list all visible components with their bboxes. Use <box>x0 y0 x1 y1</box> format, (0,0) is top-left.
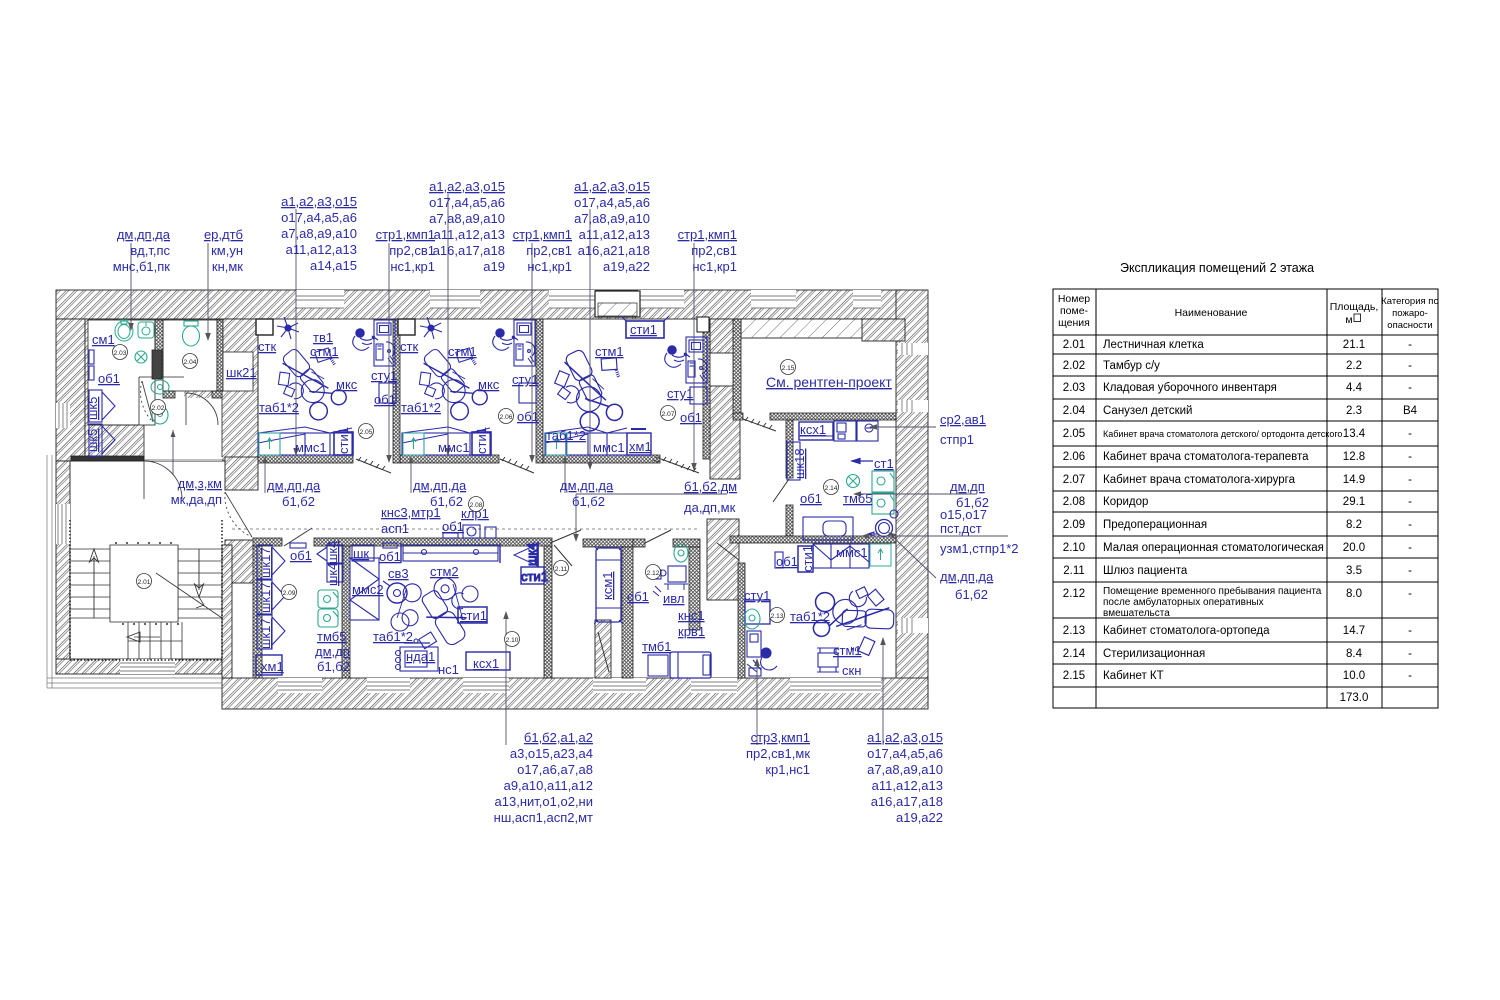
svg-text:б1,б2,а1,а2: б1,б2,а1,а2 <box>524 730 593 745</box>
svg-text:а1,а2,а3,о15: а1,а2,а3,о15 <box>281 194 357 209</box>
svg-text:а11,а12,а13: а11,а12,а13 <box>286 242 357 257</box>
svg-text:тмб5: тмб5 <box>317 629 346 644</box>
svg-text:пр2,св1: пр2,св1 <box>389 243 435 258</box>
svg-text:8.0: 8.0 <box>1346 588 1362 600</box>
svg-text:св3: св3 <box>388 566 409 581</box>
svg-text:2.08: 2.08 <box>1063 496 1085 508</box>
svg-text:стр1,кмп1: стр1,кмп1 <box>678 227 737 242</box>
svg-text:ст1: ст1 <box>874 456 894 471</box>
svg-text:ивл: ивл <box>663 591 684 606</box>
svg-text:после амбулаторных оперативных: после амбулаторных оперативных <box>1103 596 1264 608</box>
svg-text:29.1: 29.1 <box>1343 496 1365 508</box>
svg-text:шк4: шк4 <box>325 563 340 586</box>
svg-text:2.14: 2.14 <box>1063 648 1086 660</box>
svg-text:8.2: 8.2 <box>1346 519 1362 531</box>
svg-text:Номер: Номер <box>1058 293 1090 305</box>
svg-text:Предоперационная: Предоперационная <box>1103 519 1207 531</box>
svg-text:нс1,кр1: нс1,кр1 <box>692 259 737 274</box>
svg-text:а19: а19 <box>483 259 505 274</box>
svg-text:кр1,нс1: кр1,нс1 <box>765 762 810 777</box>
svg-text:об1: об1 <box>379 549 401 564</box>
svg-text:2.12: 2.12 <box>647 570 660 577</box>
svg-text:2.13: 2.13 <box>1063 625 1085 637</box>
svg-text:ммс1: ммс1 <box>438 440 470 455</box>
svg-text:б1,б2: б1,б2 <box>430 494 463 509</box>
svg-text:стм1: стм1 <box>310 344 339 359</box>
svg-text:дм,дп,да: дм,дп,да <box>413 478 467 493</box>
svg-text:-: - <box>1408 625 1412 637</box>
svg-text:нс1,кр1: нс1,кр1 <box>390 259 435 274</box>
svg-text:дм,дп: дм,дп <box>315 644 350 659</box>
svg-text:да,дп,мк: да,дп,мк <box>684 500 736 515</box>
svg-text:а11,а12,а13: а11,а12,а13 <box>579 227 650 242</box>
svg-text:см1: см1 <box>92 332 115 347</box>
svg-text:2.09: 2.09 <box>283 590 296 597</box>
svg-text:стк: стк <box>400 339 418 354</box>
svg-text:а11,а12,а13: а11,а12,а13 <box>434 227 505 242</box>
svg-text:сти1: сти1 <box>521 569 548 584</box>
svg-text:б1,б2,дм: б1,б2,дм <box>684 479 737 494</box>
svg-text:стм1: стм1 <box>595 344 624 359</box>
svg-text:о17,а4,а5,а6: о17,а4,а5,а6 <box>867 746 943 761</box>
svg-text:стр1,кмп1: стр1,кмп1 <box>513 227 572 242</box>
svg-text:14.7: 14.7 <box>1343 625 1365 637</box>
svg-text:ммс2: ммс2 <box>352 582 384 597</box>
svg-text:мкс: мкс <box>336 377 358 392</box>
svg-text:2.04: 2.04 <box>1063 405 1086 417</box>
svg-text:Кабинет стоматолога-ортопеда: Кабинет стоматолога-ортопеда <box>1103 625 1270 637</box>
svg-text:хм1: хм1 <box>629 439 652 454</box>
svg-text:-: - <box>1408 474 1412 486</box>
svg-text:2.12: 2.12 <box>1063 588 1085 600</box>
svg-text:стр1,кмп1: стр1,кмп1 <box>376 227 435 242</box>
svg-text:стр3,кмп1: стр3,кмп1 <box>751 730 810 745</box>
svg-text:2.04: 2.04 <box>184 359 197 366</box>
svg-text:сту1: сту1 <box>512 372 538 387</box>
svg-text:2.06: 2.06 <box>500 414 513 421</box>
svg-text:10.0: 10.0 <box>1343 670 1365 682</box>
svg-text:б1,б2: б1,б2 <box>317 659 350 674</box>
svg-text:-: - <box>1408 451 1412 463</box>
svg-text:2.15: 2.15 <box>1063 670 1085 682</box>
svg-text:Малая операционная стоматологи: Малая операционная стоматологическая <box>1103 542 1324 554</box>
svg-text:См. рентген-проект: См. рентген-проект <box>766 374 892 390</box>
svg-text:о15,о17: о15,о17 <box>940 507 987 522</box>
svg-text:а1,а2,а3,о15: а1,а2,а3,о15 <box>867 730 943 745</box>
svg-text:б1,б2: б1,б2 <box>955 587 988 602</box>
svg-text:-: - <box>1408 360 1412 372</box>
svg-text:-: - <box>1408 542 1412 554</box>
svg-text:ксх1: ксх1 <box>800 422 826 437</box>
svg-text:2.2: 2.2 <box>1346 360 1362 372</box>
svg-text:кн,мк: кн,мк <box>212 259 243 274</box>
svg-text:сти1: сти1 <box>474 427 489 454</box>
svg-text:тмб5: тмб5 <box>843 491 872 506</box>
svg-text:пожаро-: пожаро- <box>1392 308 1428 319</box>
svg-text:2.03: 2.03 <box>1063 382 1085 394</box>
svg-text:дм,з,км: дм,з,км <box>178 476 222 491</box>
svg-text:пр2,св1,мк: пр2,св1,мк <box>746 746 810 761</box>
svg-text:а19,а22: а19,а22 <box>603 259 650 274</box>
svg-text:4.4: 4.4 <box>1346 382 1363 394</box>
svg-text:2.06: 2.06 <box>1063 451 1085 463</box>
svg-text:2.10: 2.10 <box>506 637 519 644</box>
svg-text:2.13: 2.13 <box>771 613 784 620</box>
svg-text:скн: скн <box>842 663 861 678</box>
svg-text:Стерилизационная: Стерилизационная <box>1103 648 1205 660</box>
svg-text:Шлюз пациента: Шлюз пациента <box>1103 565 1188 577</box>
svg-text:3.5: 3.5 <box>1346 565 1362 577</box>
svg-text:мк,да,дп: мк,да,дп <box>171 492 222 507</box>
svg-text:2.11: 2.11 <box>1063 565 1085 577</box>
svg-text:Кладовая уборочного инвентаря: Кладовая уборочного инвентаря <box>1103 382 1277 394</box>
svg-text:вмешательста: вмешательста <box>1103 608 1170 619</box>
svg-text:пст,дст: пст,дст <box>940 521 982 536</box>
svg-text:20.0: 20.0 <box>1343 542 1365 554</box>
svg-text:стм1: стм1 <box>833 643 862 658</box>
svg-text:дм,дп,да: дм,дп,да <box>560 478 614 493</box>
svg-text:стк: стк <box>258 339 276 354</box>
svg-text:таб1*2: таб1*2 <box>259 400 299 415</box>
svg-text:крв1: крв1 <box>678 624 705 639</box>
svg-text:2.14: 2.14 <box>825 485 838 492</box>
svg-text:Санузел детский: Санузел детский <box>1103 405 1192 417</box>
svg-text:шк4: шк4 <box>524 543 539 566</box>
svg-text:нс1: нс1 <box>438 662 459 677</box>
svg-text:2.05: 2.05 <box>360 429 373 436</box>
svg-text:щения: щения <box>1058 317 1090 329</box>
svg-text:мнс,б1,пк: мнс,б1,пк <box>113 259 171 274</box>
svg-text:об1: об1 <box>800 491 822 506</box>
svg-text:-: - <box>1408 519 1412 531</box>
svg-text:а1,а2,а3,о15: а1,а2,а3,о15 <box>574 179 650 194</box>
svg-text:-: - <box>1408 382 1412 394</box>
svg-text:о17,а6,а7,а8: о17,а6,а7,а8 <box>517 762 593 777</box>
svg-text:13.4: 13.4 <box>1343 428 1366 440</box>
svg-text:поме-: поме- <box>1060 305 1089 317</box>
svg-text:а7,а8,а9,а10: а7,а8,а9,а10 <box>281 226 357 241</box>
svg-text:2.07: 2.07 <box>662 411 675 418</box>
svg-text:Тамбур с/у: Тамбур с/у <box>1103 360 1160 372</box>
svg-text:тмб1: тмб1 <box>642 639 671 654</box>
svg-text:шк4: шк4 <box>325 541 340 564</box>
svg-text:м: м <box>1345 314 1352 326</box>
svg-text:шк17: шк17 <box>258 582 273 613</box>
svg-text:шк5: шк5 <box>85 397 100 420</box>
svg-text:кнс1: кнс1 <box>678 608 705 623</box>
svg-text:-: - <box>1408 428 1412 440</box>
svg-text:б1,б2: б1,б2 <box>572 494 605 509</box>
svg-text:а7,а8,а9,а10: а7,а8,а9,а10 <box>429 211 505 226</box>
svg-text:стм1: стм1 <box>448 344 477 359</box>
svg-text:дм,дп,да: дм,дп,да <box>267 478 321 493</box>
svg-text:сти1: сти1 <box>336 427 351 454</box>
svg-text:таб1*2: таб1*2 <box>373 629 413 644</box>
svg-text:а3,о15,а23,а4: а3,о15,а23,а4 <box>510 746 593 761</box>
svg-text:-: - <box>1408 496 1412 508</box>
svg-text:8.4: 8.4 <box>1346 648 1363 660</box>
svg-text:ммс1: ммс1 <box>295 440 327 455</box>
svg-text:Кабинет врача стоматолога-хиру: Кабинет врача стоматолога-хирурга <box>1103 474 1296 486</box>
svg-text:пр2,св1: пр2,св1 <box>691 243 737 258</box>
svg-text:ксм1: ксм1 <box>600 571 615 600</box>
svg-text:2.07: 2.07 <box>1063 474 1085 486</box>
svg-text:Наименование: Наименование <box>1175 307 1248 319</box>
svg-text:а7,а8,а9,а10: а7,а8,а9,а10 <box>574 211 650 226</box>
svg-text:Экспликация помещений 2 этажа: Экспликация помещений 2 этажа <box>1120 261 1314 275</box>
svg-text:2.15: 2.15 <box>782 365 795 372</box>
svg-text:шк17: шк17 <box>258 547 273 578</box>
svg-text:шк17: шк17 <box>258 618 273 649</box>
svg-text:сту1: сту1 <box>371 368 397 383</box>
svg-text:Коридор: Коридор <box>1103 496 1148 508</box>
svg-text:сти1: сти1 <box>460 608 487 623</box>
svg-text:нш,асп1,асп2,мт: нш,асп1,асп2,мт <box>494 810 593 825</box>
svg-text:км,ун: км,ун <box>211 243 243 258</box>
svg-text:об1: об1 <box>374 392 396 407</box>
svg-text:ксх1: ксх1 <box>473 656 499 671</box>
svg-text:таб1*2: таб1*2 <box>546 428 586 443</box>
svg-text:нс1,кр1: нс1,кр1 <box>527 259 572 274</box>
svg-text:-: - <box>1408 588 1412 600</box>
svg-text:об1: об1 <box>680 410 702 425</box>
svg-text:о17,а4,а5,а6: о17,а4,а5,а6 <box>281 210 357 225</box>
svg-text:об1: об1 <box>290 548 312 563</box>
svg-text:12.8: 12.8 <box>1343 451 1365 463</box>
svg-text:2.11: 2.11 <box>555 566 568 573</box>
svg-text:опасности: опасности <box>1387 320 1432 331</box>
svg-text:таб1*2: таб1*2 <box>790 609 830 624</box>
svg-text:ммс1: ммс1 <box>593 440 625 455</box>
svg-text:-: - <box>1408 339 1412 351</box>
svg-text:а1,а2,а3,о15: а1,а2,а3,о15 <box>429 179 505 194</box>
svg-text:ммс1: ммс1 <box>836 545 868 560</box>
svg-text:о17,а4,а5,а6: о17,а4,а5,а6 <box>574 195 650 210</box>
svg-text:а16,а21,а18: а16,а21,а18 <box>578 243 650 258</box>
svg-text:а11,а12,а13: а11,а12,а13 <box>872 778 943 793</box>
svg-text:нда1: нда1 <box>406 649 435 664</box>
svg-text:2.01: 2.01 <box>138 579 151 586</box>
svg-text:об1: об1 <box>776 554 798 569</box>
svg-text:2.09: 2.09 <box>1063 519 1085 531</box>
svg-text:Кабинет врача стоматолога детс: Кабинет врача стоматолога детского/ орто… <box>1103 429 1342 439</box>
svg-text:Кабинет врача стоматолога-тера: Кабинет врача стоматолога-терапевта <box>1103 451 1309 463</box>
svg-text:14.9: 14.9 <box>1343 474 1365 486</box>
svg-text:2.05: 2.05 <box>1063 428 1085 440</box>
svg-text:2.02: 2.02 <box>1063 360 1085 372</box>
svg-text:а13,нит,о1,о2,ни: а13,нит,о1,о2,ни <box>495 794 593 809</box>
svg-text:мкс: мкс <box>478 377 500 392</box>
svg-text:сту1: сту1 <box>667 386 693 401</box>
svg-text:а14,а15: а14,а15 <box>310 258 357 273</box>
svg-text:сту1: сту1 <box>744 588 770 603</box>
svg-text:2.3: 2.3 <box>1346 405 1362 417</box>
svg-text:сти1: сти1 <box>630 322 657 337</box>
svg-text:2.02: 2.02 <box>152 405 165 412</box>
svg-text:хм1: хм1 <box>261 659 284 674</box>
svg-text:сти1: сти1 <box>800 545 815 572</box>
svg-text:дм,дп,да: дм,дп,да <box>940 569 994 584</box>
svg-text:об1: об1 <box>98 371 120 386</box>
svg-text:шк: шк <box>353 546 369 561</box>
svg-text:вд,т,пс: вд,т,пс <box>130 243 170 258</box>
svg-text:б1,б2: б1,б2 <box>282 494 315 509</box>
svg-text:2.08: 2.08 <box>470 502 483 509</box>
svg-text:об1: об1 <box>627 589 649 604</box>
svg-text:-: - <box>1408 648 1412 660</box>
svg-text:-: - <box>1408 565 1412 577</box>
svg-text:стпр1: стпр1 <box>940 432 974 447</box>
svg-text:асп1: асп1 <box>381 521 409 536</box>
svg-text:стм2: стм2 <box>430 564 459 579</box>
svg-text:173.0: 173.0 <box>1340 692 1369 704</box>
svg-text:Кабинет КТ: Кабинет КТ <box>1103 670 1164 682</box>
svg-text:шк21: шк21 <box>226 365 257 380</box>
svg-text:Лестничная клетка: Лестничная клетка <box>1103 339 1204 351</box>
svg-text:В4: В4 <box>1403 405 1418 417</box>
svg-text:ср2,ав1: ср2,ав1 <box>940 412 986 427</box>
svg-text:об1: об1 <box>442 519 464 534</box>
svg-text:о17,а4,а5,а6: о17,а4,а5,а6 <box>429 195 505 210</box>
svg-text:2.01: 2.01 <box>1063 339 1085 351</box>
svg-text:а16,а17,а18: а16,а17,а18 <box>871 794 943 809</box>
svg-text:узм1,стпр1*2: узм1,стпр1*2 <box>940 541 1018 556</box>
svg-text:Помещение временного пребывани: Помещение временного пребывания пациента <box>1103 585 1322 597</box>
svg-text:а16,а17,а18: а16,а17,а18 <box>433 243 505 258</box>
svg-text:тв1: тв1 <box>313 330 333 345</box>
svg-text:ер,дтб: ер,дтб <box>204 227 243 242</box>
svg-text:шк18: шк18 <box>792 448 807 479</box>
svg-text:пр2,св1: пр2,св1 <box>526 243 572 258</box>
svg-text:дм,дп: дм,дп <box>950 479 985 494</box>
svg-text:таб1*2: таб1*2 <box>401 400 441 415</box>
svg-text:а19,а22: а19,а22 <box>896 810 943 825</box>
svg-text:об1: об1 <box>517 409 539 424</box>
svg-text:2.10: 2.10 <box>1063 542 1085 554</box>
svg-text:Категория по: Категория по <box>1381 296 1438 307</box>
svg-text:а9,а10,а11,а12: а9,а10,а11,а12 <box>504 778 593 793</box>
svg-text:21.1: 21.1 <box>1343 339 1365 351</box>
svg-text:2.03: 2.03 <box>114 350 127 357</box>
svg-text:а7,а8,а9,а10: а7,а8,а9,а10 <box>867 762 943 777</box>
svg-text:-: - <box>1408 670 1412 682</box>
svg-text:Площадь,: Площадь, <box>1330 301 1379 313</box>
svg-text:дм,дп,да: дм,дп,да <box>117 227 171 242</box>
svg-text:шк5: шк5 <box>85 429 100 452</box>
